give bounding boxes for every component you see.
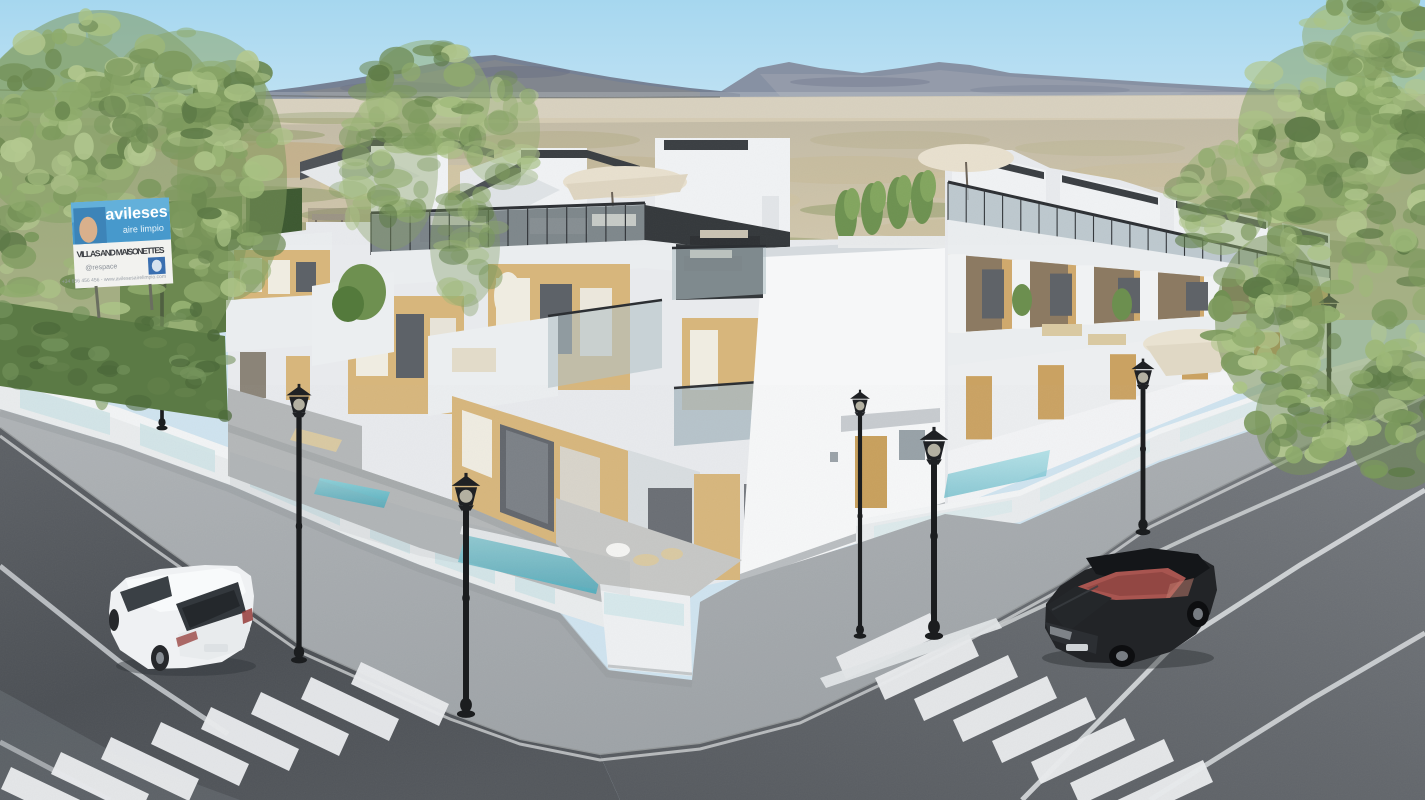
svg-text:avileses: avileses (105, 204, 168, 224)
